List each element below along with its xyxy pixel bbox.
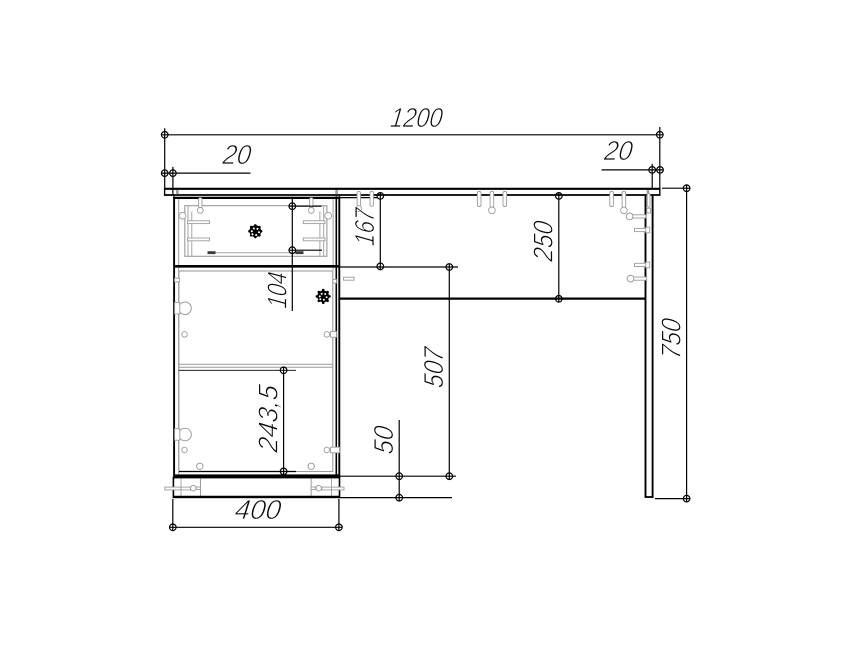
svg-text:20: 20	[220, 139, 253, 170]
svg-text:750: 750	[655, 316, 686, 360]
svg-text:1200: 1200	[389, 102, 445, 133]
svg-text:243,5: 243,5	[252, 382, 283, 454]
svg-text:50: 50	[368, 423, 399, 455]
svg-text:250: 250	[527, 218, 558, 263]
svg-text:167: 167	[349, 205, 380, 247]
svg-text:104: 104	[261, 270, 292, 310]
svg-text:507: 507	[418, 344, 449, 389]
svg-text:400: 400	[233, 494, 283, 525]
svg-text:20: 20	[602, 135, 635, 166]
